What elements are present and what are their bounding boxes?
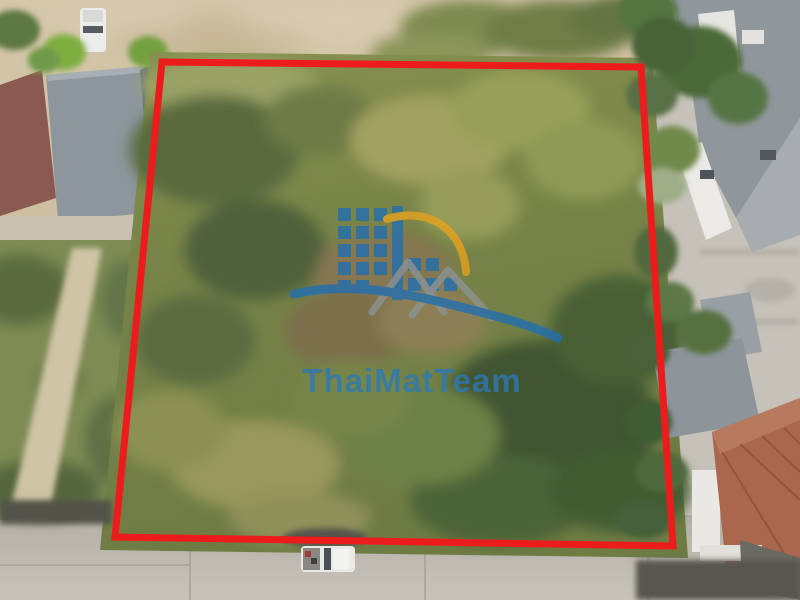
- watermark-text: ThaiMatTeam: [302, 362, 521, 399]
- pickup-truck-bottom: [301, 546, 355, 572]
- aerial-photo: ThaiMatTeam: [0, 0, 800, 600]
- roadside-shadow: [0, 500, 112, 524]
- plot-vegetation: [115, 57, 690, 545]
- bottom-right-shadow: [636, 560, 800, 600]
- aerial-photo-canvas: ThaiMatTeam: [0, 0, 800, 600]
